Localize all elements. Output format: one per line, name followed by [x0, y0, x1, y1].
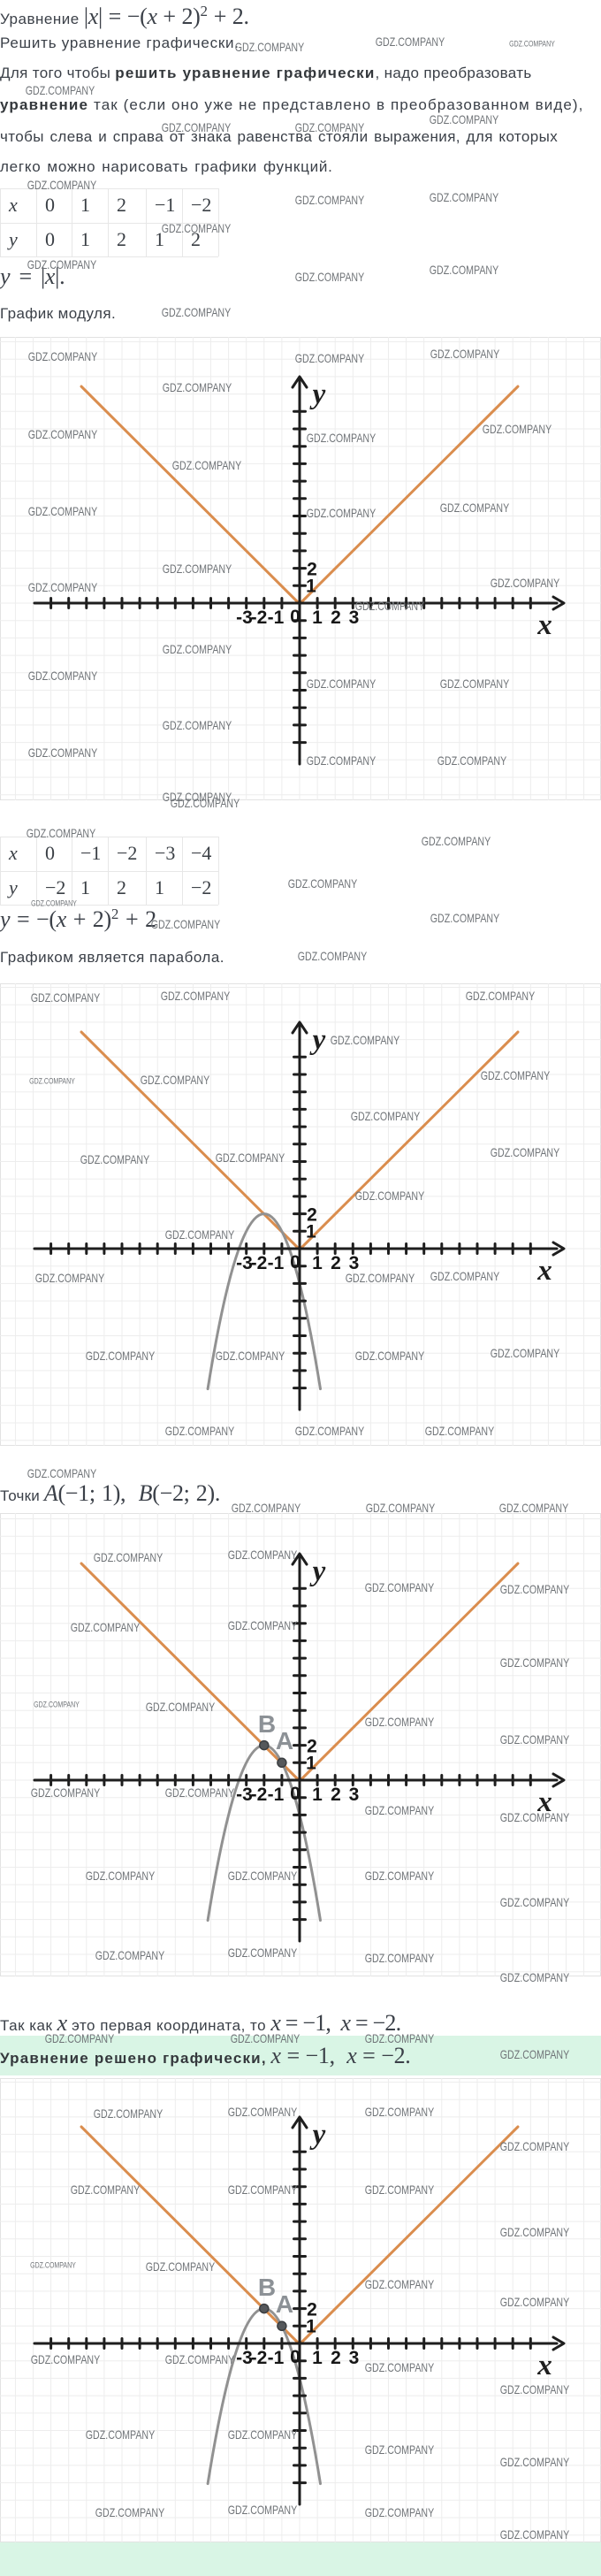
svg-text:2: 2	[307, 2300, 317, 2320]
svg-text:-2: -2	[251, 608, 268, 628]
svg-text:0: 0	[290, 607, 300, 627]
svg-text:-2: -2	[251, 2348, 268, 2368]
svg-text:2: 2	[331, 2348, 341, 2368]
svg-text:-2: -2	[251, 1785, 268, 1805]
svg-text:2: 2	[307, 1205, 317, 1226]
svg-text:2: 2	[331, 1253, 341, 1273]
svg-text:0: 0	[290, 1784, 300, 1804]
svg-text:1: 1	[312, 2348, 323, 2368]
svg-text:A: A	[276, 2290, 293, 2318]
svg-text:2: 2	[307, 560, 317, 580]
svg-text:-1: -1	[268, 2348, 285, 2368]
svg-text:x: x	[536, 1255, 552, 1287]
svg-text:2: 2	[307, 1737, 317, 1757]
svg-text:3: 3	[349, 1785, 360, 1805]
svg-text:1: 1	[312, 1785, 323, 1805]
svg-text:-1: -1	[268, 608, 285, 628]
svg-text:-1: -1	[268, 1253, 285, 1273]
svg-text:-1: -1	[268, 1785, 285, 1805]
svg-text:-2: -2	[251, 1253, 268, 1273]
svg-text:2: 2	[331, 1785, 341, 1805]
svg-text:2: 2	[331, 608, 341, 628]
svg-text:A: A	[276, 1727, 293, 1754]
svg-text:B: B	[258, 1710, 276, 1738]
svg-text:x: x	[536, 609, 552, 641]
svg-text:0: 0	[290, 1252, 300, 1273]
svg-text:B: B	[258, 2274, 276, 2301]
svg-text:x: x	[536, 2350, 552, 2381]
svg-text:0: 0	[290, 2347, 300, 2367]
svg-text:1: 1	[312, 608, 323, 628]
svg-text:1: 1	[312, 1253, 323, 1273]
svg-text:3: 3	[349, 2348, 360, 2368]
